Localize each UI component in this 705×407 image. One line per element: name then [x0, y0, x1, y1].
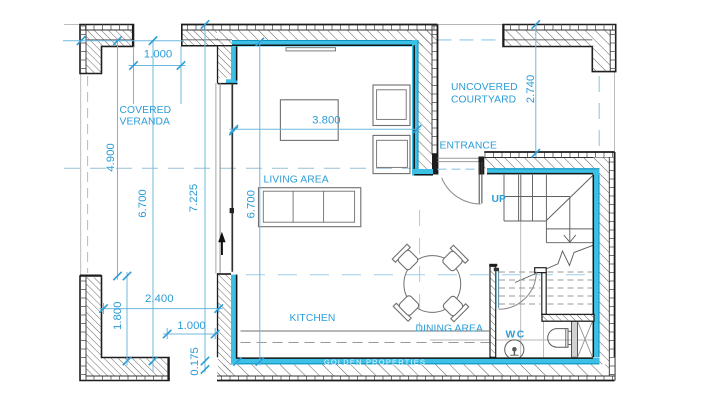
svg-text:ENTRANCE: ENTRANCE: [440, 140, 497, 151]
svg-text:2.400: 2.400: [145, 293, 174, 305]
svg-text:1.000: 1.000: [144, 49, 173, 61]
svg-text:COURTYARD: COURTYARD: [451, 95, 516, 106]
svg-text:DINING AREA: DINING AREA: [416, 323, 484, 334]
svg-text:UNCOVERED: UNCOVERED: [451, 82, 518, 93]
svg-text:2.740: 2.740: [525, 75, 537, 104]
svg-text:WC: WC: [506, 329, 526, 340]
svg-text:UP: UP: [492, 194, 507, 205]
svg-text:6.700: 6.700: [246, 190, 258, 219]
svg-text:1.000: 1.000: [177, 320, 206, 332]
svg-text:KITCHEN: KITCHEN: [290, 313, 336, 324]
svg-text:0.175: 0.175: [189, 347, 201, 376]
svg-text:6.700: 6.700: [137, 189, 149, 218]
svg-text:VERANDA: VERANDA: [120, 117, 171, 128]
svg-text:GOLDEN PROPERTIES: GOLDEN PROPERTIES: [324, 357, 426, 366]
svg-text:7.225: 7.225: [188, 184, 200, 213]
svg-text:LIVING AREA: LIVING AREA: [264, 174, 329, 185]
svg-text:3.800: 3.800: [312, 115, 341, 127]
svg-text:4.900: 4.900: [105, 143, 117, 172]
svg-text:1.800: 1.800: [112, 302, 124, 331]
svg-text:COVERED: COVERED: [120, 105, 172, 116]
